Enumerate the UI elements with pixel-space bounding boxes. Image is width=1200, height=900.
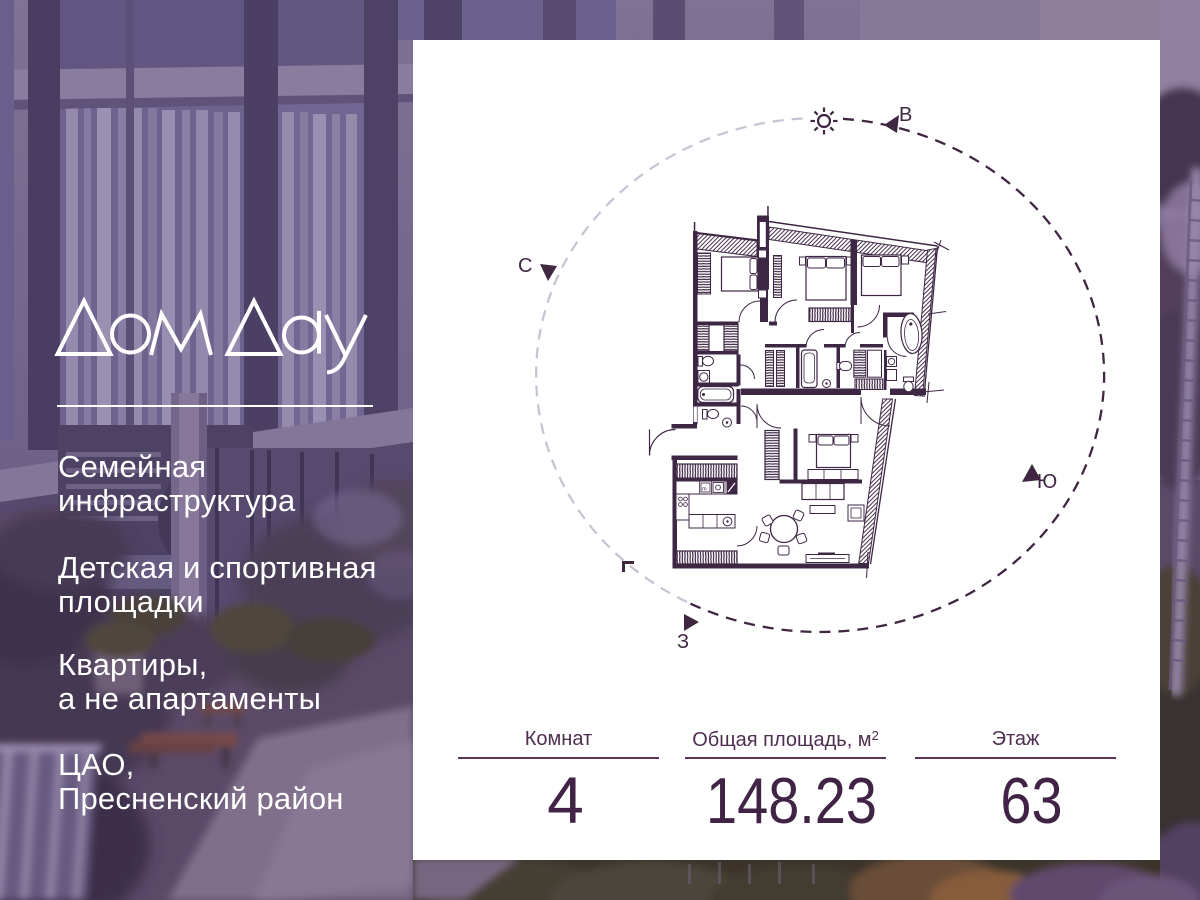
svg-text:З: З — [677, 631, 689, 653]
svg-text:Ю: Ю — [1037, 471, 1057, 493]
svg-text:С: С — [518, 255, 532, 277]
svg-text:m: m — [702, 487, 707, 493]
svg-text:В: В — [899, 104, 912, 126]
